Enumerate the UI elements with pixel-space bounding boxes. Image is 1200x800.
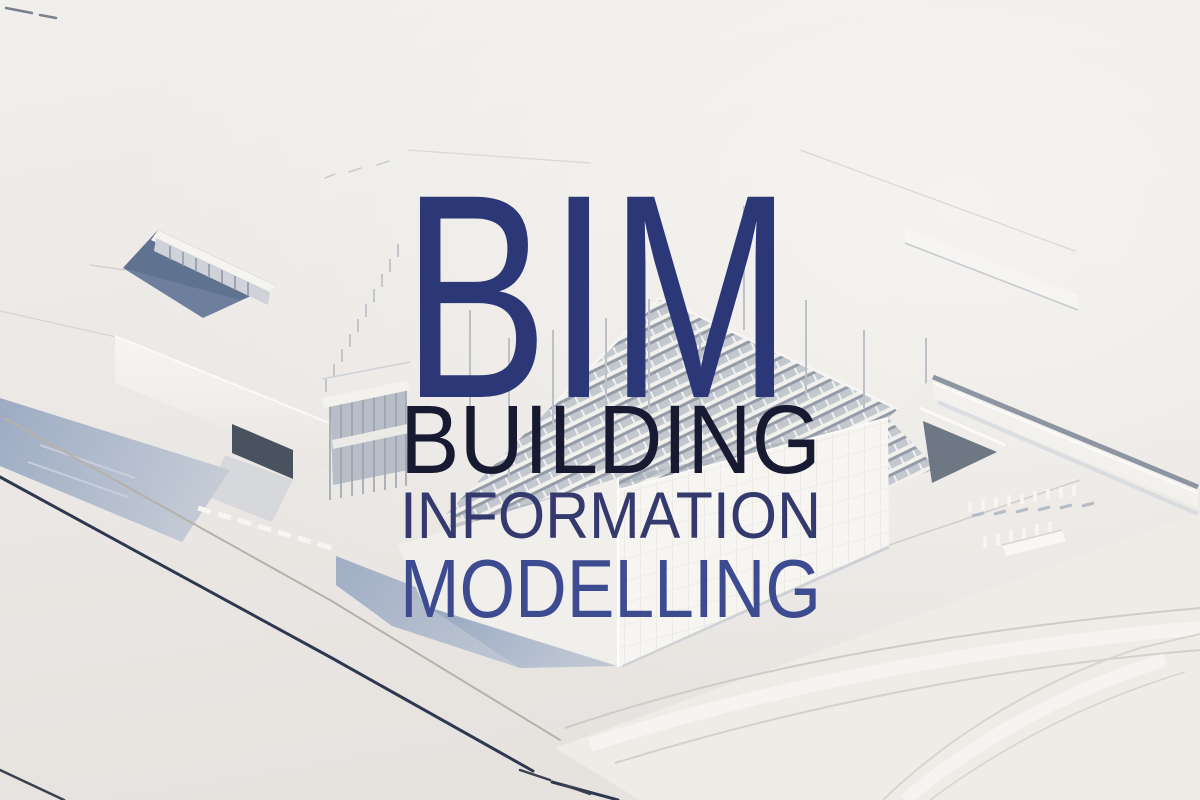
building-render: BIM BUILDING INFORMATION MODELLING xyxy=(0,0,1200,800)
bim-poster: BIM BUILDING INFORMATION MODELLING xyxy=(0,0,1200,800)
title-line-information: INFORMATION xyxy=(400,478,821,552)
title-block: BIM BUILDING INFORMATION MODELLING xyxy=(400,134,821,635)
title-line-modelling: MODELLING xyxy=(400,542,821,635)
